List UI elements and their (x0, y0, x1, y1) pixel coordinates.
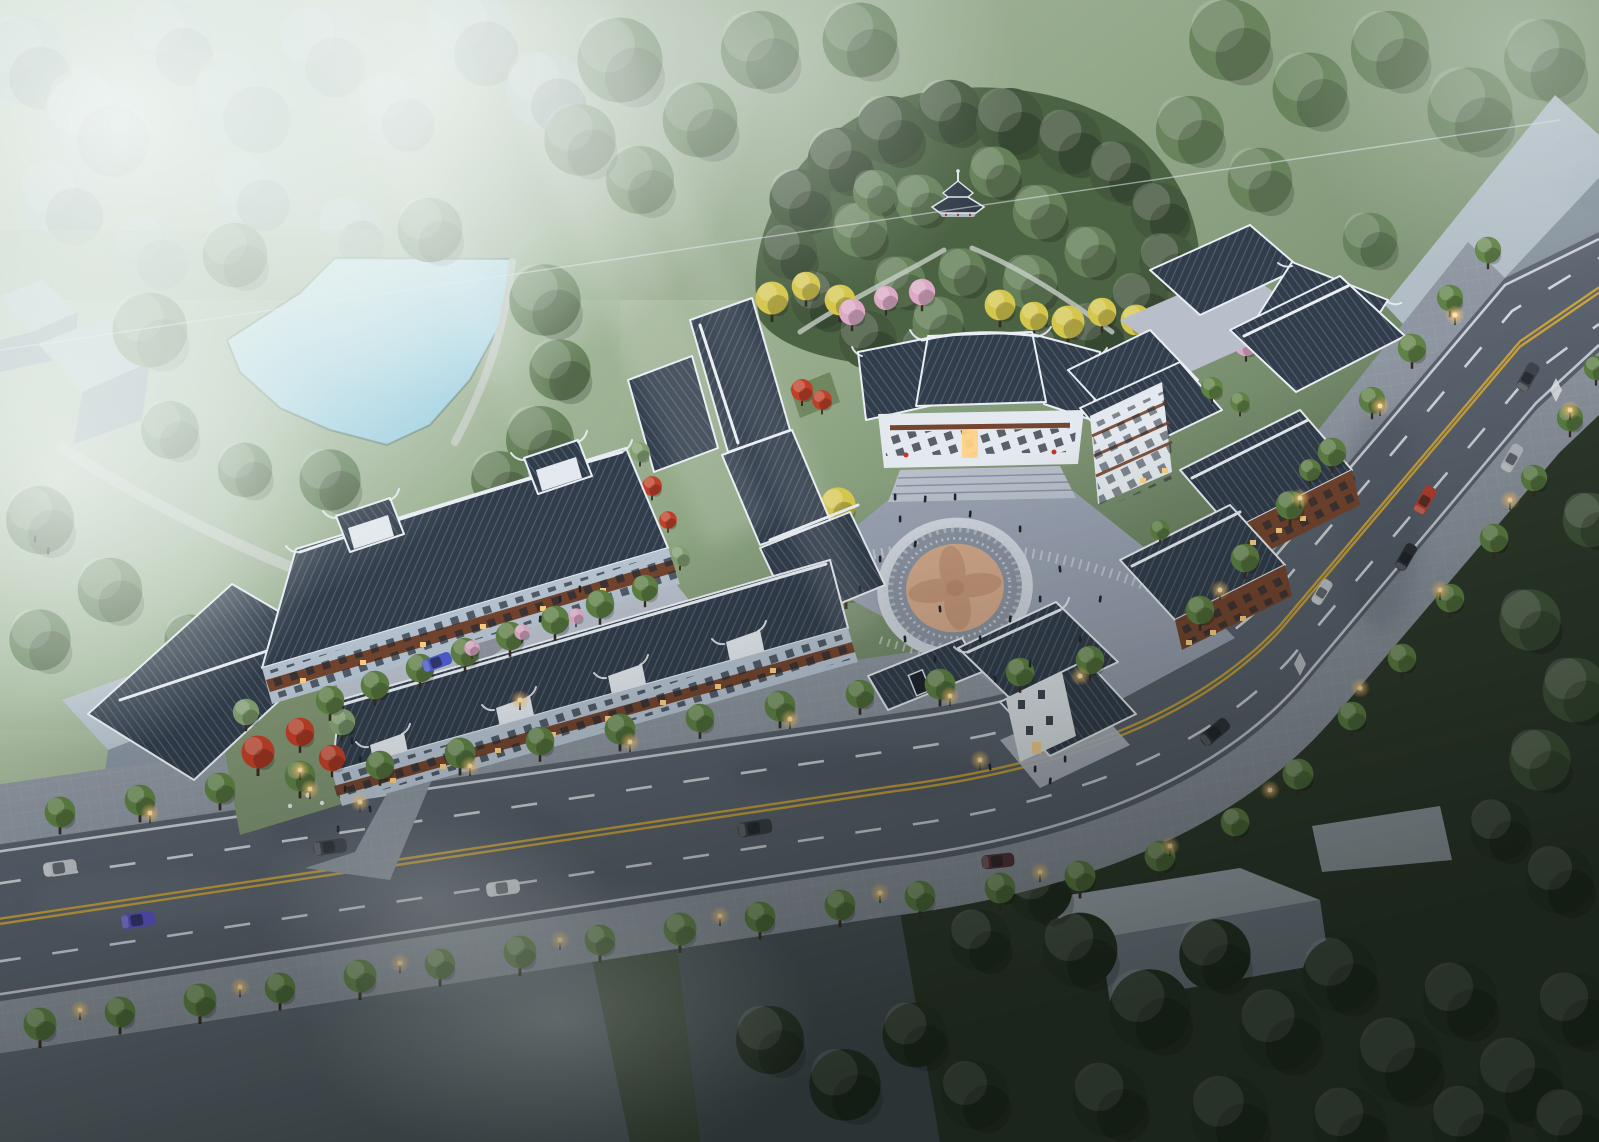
vignette (0, 0, 1599, 1142)
rendering-canvas (0, 0, 1599, 1142)
aerial-architectural-rendering (0, 0, 1599, 1142)
atmosphere (0, 0, 1599, 1142)
